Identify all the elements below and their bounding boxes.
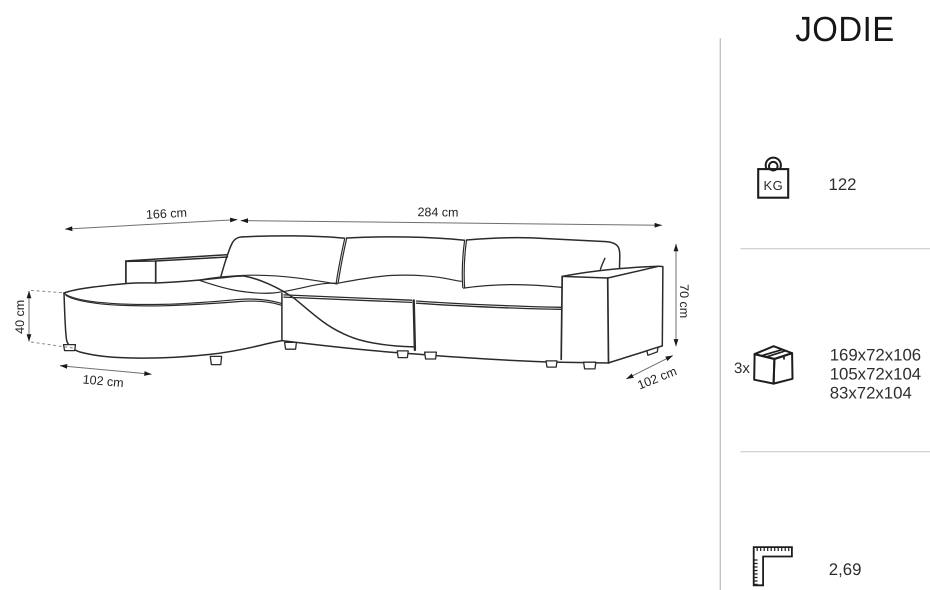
svg-text:JODIE: JODIE bbox=[795, 10, 894, 49]
svg-text:KG: KG bbox=[764, 178, 784, 193]
svg-text:102 cm: 102 cm bbox=[82, 372, 124, 390]
svg-text:169x72x106: 169x72x106 bbox=[830, 345, 921, 364]
svg-text:166 cm: 166 cm bbox=[146, 206, 188, 222]
svg-text:122: 122 bbox=[829, 175, 857, 194]
svg-text:83x72x104: 83x72x104 bbox=[830, 384, 912, 403]
svg-text:70 cm: 70 cm bbox=[677, 284, 691, 318]
svg-text:3x: 3x bbox=[734, 360, 750, 377]
svg-text:2,69: 2,69 bbox=[829, 560, 862, 579]
svg-text:105x72x104: 105x72x104 bbox=[830, 365, 921, 384]
svg-text:102 cm: 102 cm bbox=[635, 364, 678, 392]
svg-text:284 cm: 284 cm bbox=[417, 205, 458, 219]
svg-text:40 cm: 40 cm bbox=[13, 300, 27, 334]
